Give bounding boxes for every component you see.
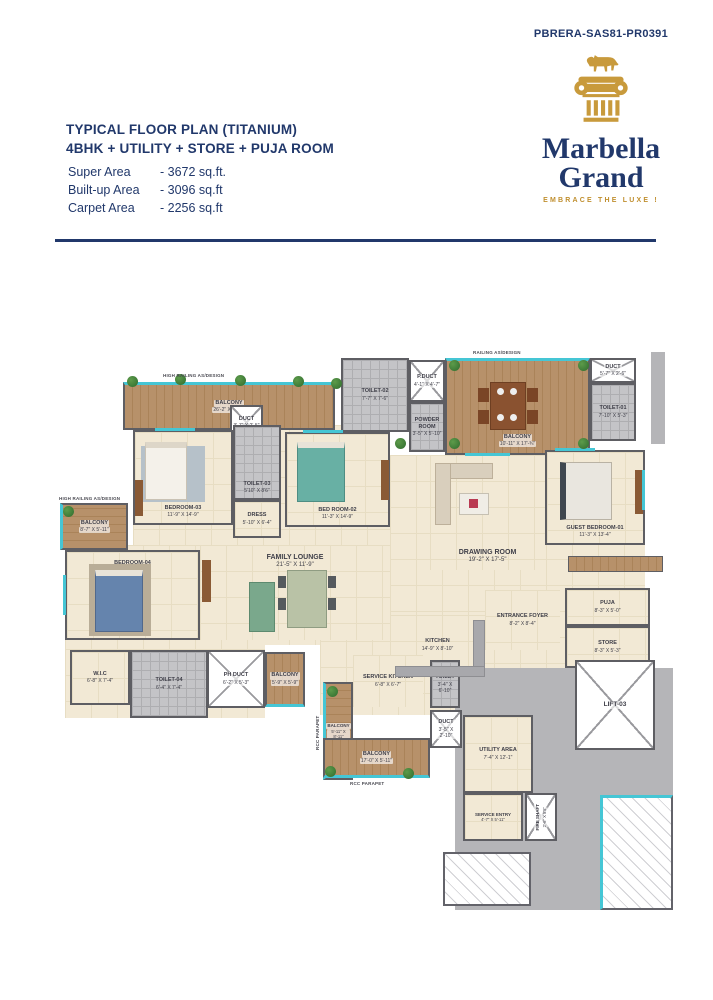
chair-icon: [478, 388, 489, 402]
plant-icon: [63, 506, 74, 517]
area-row-carpet: Carpet Area - 2256 sq.ft: [68, 201, 226, 215]
rcc-parapet-note: RCC PARAPET: [350, 781, 384, 786]
room-toilet-03: TOILET-03 5'10" X 8'6": [233, 425, 281, 500]
sofa-icon: [435, 463, 451, 525]
brand-name-line2: Grand: [531, 164, 671, 193]
window: [303, 430, 343, 433]
bed-icon: [297, 442, 345, 502]
chair-icon: [527, 410, 538, 424]
wardrobe-icon: [381, 460, 389, 500]
adjacent-unit-block: [600, 795, 673, 910]
room-toilet-01: TOILET-01 7'-10" X 5'-3": [590, 383, 636, 441]
chair-icon: [328, 576, 336, 588]
room-dress: DRESS 5'-10" X 6'-4": [233, 500, 281, 538]
plant-icon: [327, 686, 338, 697]
chair-icon: [478, 410, 489, 424]
room-ph-duct: PH DUCT 6'-2" X 5'-3": [207, 650, 265, 708]
brand-name-line1: Marbella: [531, 135, 671, 164]
window: [555, 448, 595, 451]
plate-icon: [497, 414, 504, 421]
balcony-table-icon: [490, 382, 526, 430]
plant-icon: [578, 438, 589, 449]
adjacent-shaft-block: [443, 852, 531, 906]
wood-passage: [568, 556, 663, 572]
plant-icon: [127, 376, 138, 387]
room-utility-area: UTILITY AREA 7'-4" X 12'-1": [463, 715, 533, 793]
room-entrance-foyer: ENTRANCE FOYER 8'-2" X 8'-4": [485, 590, 560, 650]
plant-icon: [331, 378, 342, 389]
plant-icon: [449, 360, 460, 371]
room-fire-shaft: FIRE SHAFT 2'-6" X 5'5": [525, 793, 557, 841]
chair-icon: [278, 576, 286, 588]
plate-icon: [510, 388, 517, 395]
room-toilet-04: TOILET-04 6'-4" X 7'-4": [130, 650, 208, 718]
plant-icon: [578, 360, 589, 371]
high-railing-note: HIGH RAILING AS/DESIGN: [163, 373, 224, 378]
column-capital-icon: [570, 52, 632, 130]
room-service-kitchen: SERVICE KITCHEN 6'-8" X 6'-7": [353, 655, 423, 707]
room-lift-03: LIFT-03: [575, 660, 655, 750]
bed-icon: [560, 462, 612, 520]
plant-icon: [293, 376, 304, 387]
plan-title-line1: TYPICAL FLOOR PLAN (TITANIUM): [66, 120, 334, 139]
area-summary: Super Area - 3672 sq.ft. Built-up Area -…: [68, 165, 226, 219]
room-wic: W.I.C 6'-8" X 7'-4": [70, 650, 130, 705]
area-value: - 3096 sq.ft: [160, 183, 223, 197]
plate-icon: [497, 388, 504, 395]
chair-icon: [328, 598, 336, 610]
dining-table-icon: [287, 570, 327, 628]
rcc-parapet-note: RCC PARAPET: [315, 716, 320, 750]
area-value: - 3672 sq.ft.: [160, 165, 226, 179]
area-row-super: Super Area - 3672 sq.ft.: [68, 165, 226, 179]
brand-logo: Marbella Grand EMBRACE THE LUXE !: [531, 52, 671, 204]
tv-unit-icon: [202, 560, 211, 602]
bed-icon: [95, 570, 143, 632]
plan-title-line2: 4BHK + UTILITY + STORE + PUJA ROOM: [66, 139, 334, 158]
plant-icon: [449, 438, 460, 449]
area-value: - 2256 sq.ft: [160, 201, 223, 215]
room-duct-small: DUCT 3'-5" X 2'-10": [430, 710, 462, 748]
wall-segment: [651, 352, 665, 444]
window: [63, 575, 66, 615]
rera-number: PBRERA-SAS81-PR0391: [534, 28, 668, 40]
room-toilet-02: TOILET-02 7'-7" X 7'-6": [341, 358, 409, 432]
plant-icon: [395, 438, 406, 449]
room-service-entry: SERVICE ENTRY 4'-7" X 5'-11": [463, 793, 523, 841]
area-label: Carpet Area: [68, 201, 160, 215]
plant-icon: [403, 768, 414, 779]
high-railing-note: HIGH RAILING AS/DESIGN: [59, 496, 120, 501]
chair-icon: [527, 388, 538, 402]
area-label: Built-up Area: [68, 183, 160, 197]
kitchen-counter-icon: [395, 666, 485, 677]
room-p-duct: P.DUCT 4'-1" X 4'-7": [409, 360, 445, 402]
plan-title: TYPICAL FLOOR PLAN (TITANIUM) 4BHK + UTI…: [66, 120, 334, 158]
window: [155, 428, 195, 431]
window: [642, 470, 645, 510]
plant-icon: [325, 766, 336, 777]
plate-icon: [510, 414, 517, 421]
room-puja: PUJA 8'-3" X 5'-0": [565, 588, 650, 626]
room-balcony-small: BALCONY 5'-9" X 5'-9": [265, 652, 305, 707]
room-balcony-top: BALCONY 26'-2" X 5'-11": [123, 382, 335, 430]
window: [465, 453, 510, 456]
chair-icon: [278, 598, 286, 610]
header-divider: [55, 239, 656, 242]
area-row-builtup: Built-up Area - 3096 sq.ft: [68, 183, 226, 197]
table-decor-icon: [469, 499, 478, 508]
room-powder-room: POWDER ROOM 3'-5" X 5'-10": [409, 402, 445, 452]
plant-icon: [235, 375, 246, 386]
floor-plan: BALCONY 26'-2" X 5'-11" DUCT 3'-7" X 2'-…: [35, 330, 675, 910]
wardrobe-icon: [135, 480, 143, 516]
bed-icon: [145, 442, 187, 500]
brand-tagline: EMBRACE THE LUXE !: [531, 197, 671, 204]
area-label: Super Area: [68, 165, 160, 179]
sofa-icon: [249, 582, 275, 632]
room-duct-b: DUCT 5'-7" X 2'-6": [590, 358, 636, 383]
railing-note: RAILING AS/DESIGN: [473, 350, 521, 355]
